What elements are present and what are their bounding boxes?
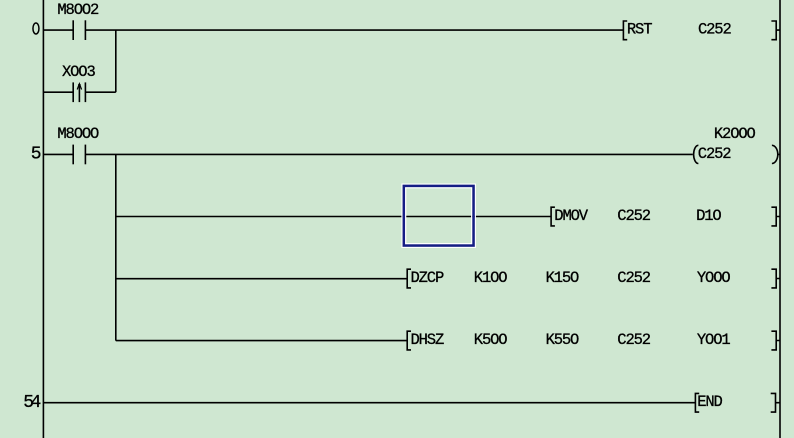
svg-text:DHSZ: DHSZ [411, 331, 444, 349]
svg-text:K55O: K55O [546, 331, 579, 349]
svg-text:RST: RST [627, 21, 652, 39]
svg-text:END: END [697, 393, 722, 411]
svg-text:K5OO: K5OO [474, 331, 507, 349]
svg-text:C252: C252 [698, 145, 731, 163]
svg-text:C252: C252 [617, 207, 650, 225]
svg-text:C252: C252 [698, 21, 731, 39]
svg-text:K15O: K15O [546, 269, 579, 287]
svg-text:YOOO: YOOO [697, 269, 730, 287]
svg-text:YOO1: YOO1 [697, 331, 730, 349]
svg-text:DMOV: DMOV [554, 207, 588, 225]
svg-text:K2OOO: K2OOO [714, 125, 756, 143]
svg-text:K1OO: K1OO [474, 269, 507, 287]
svg-text:DZCP: DZCP [411, 269, 444, 287]
svg-text:C252: C252 [617, 331, 650, 349]
svg-text:D1O: D1O [696, 207, 721, 225]
svg-text:XOO3: XOO3 [62, 63, 95, 81]
svg-text:C252: C252 [617, 269, 650, 287]
svg-text:M8OOO: M8OOO [57, 125, 99, 143]
svg-text:M8OO2: M8OO2 [57, 1, 99, 19]
